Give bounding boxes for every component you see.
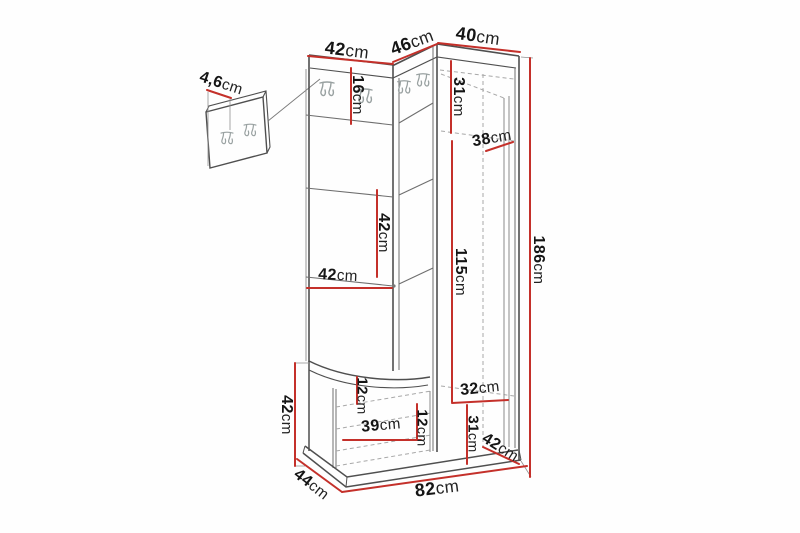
coat-hook-icon bbox=[244, 124, 256, 136]
dimension-label-bench-height: 42cm bbox=[278, 395, 294, 435]
pointer-line bbox=[268, 79, 320, 121]
furniture-line-drawing bbox=[0, 0, 800, 533]
coat-hook-icon bbox=[398, 81, 411, 93]
wardrobe-outline bbox=[306, 44, 519, 460]
dimension-label-middle-shelf-width: 42cm bbox=[318, 267, 358, 285]
dimension-label-lower-niche-height: 31cm bbox=[465, 415, 480, 452]
dimension-label-middle-shelf-height: 42cm bbox=[375, 213, 391, 253]
dimension-label-hook-panel-height: 16cm bbox=[349, 75, 365, 115]
coat-hook-icon bbox=[320, 82, 334, 96]
seam-node bbox=[392, 284, 395, 287]
hook-rail bbox=[320, 74, 429, 103]
dimension-label-total-height: 186cm bbox=[530, 236, 546, 285]
dim-line-lower-niche-width bbox=[452, 400, 508, 403]
dimension-label-wardrobe-inner-height: 115cm bbox=[452, 248, 468, 296]
coat-hook-icon bbox=[221, 132, 233, 144]
dimension-label-bench-shelf-height: 12cm bbox=[414, 409, 429, 446]
product-dimension-image: 4,6cm 42cm 46cm 40cm 16cm 31cm 38cm 42cm… bbox=[0, 0, 800, 533]
dimension-label-wardrobe-top-inner-height: 31cm bbox=[450, 77, 466, 117]
dimension-label-seat-board-height: 12cm bbox=[354, 377, 369, 414]
coat-hook-icon bbox=[417, 74, 430, 86]
